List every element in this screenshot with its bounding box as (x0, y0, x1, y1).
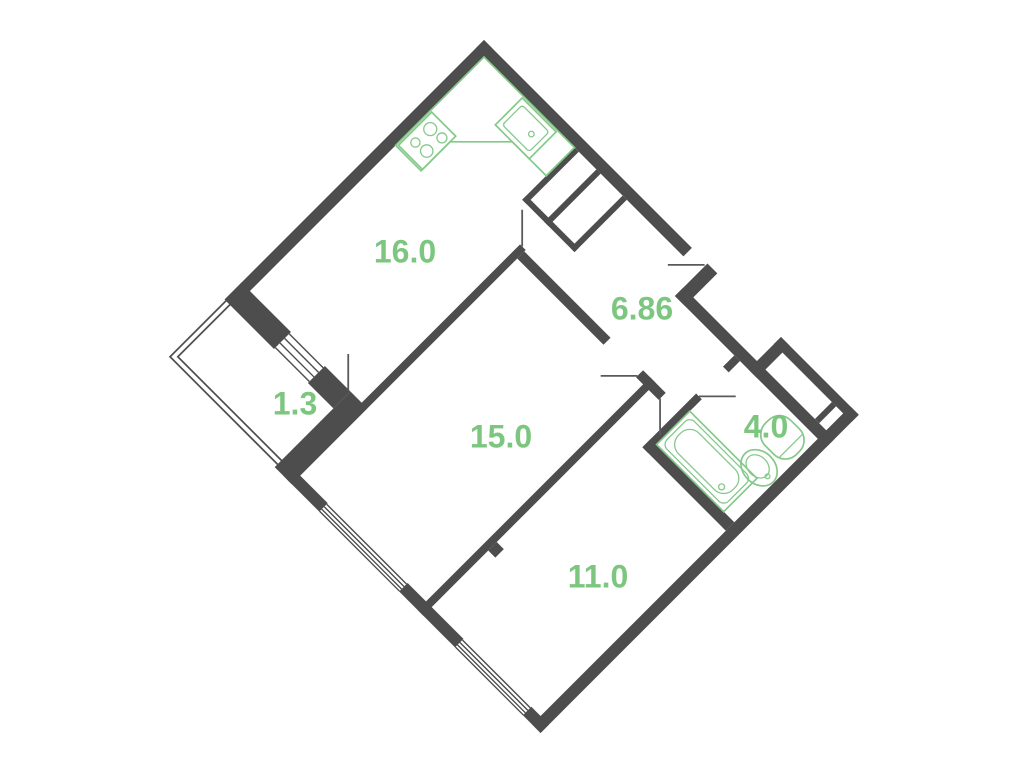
top-wall (476, 40, 692, 256)
bathtub-drain (717, 483, 725, 491)
room-label-kitchen: 16.0 (374, 234, 436, 271)
ventilation-shaft (522, 147, 627, 252)
washbasin-faucet (764, 473, 771, 480)
left-wall (240, 40, 492, 292)
room-label-hallway: 6.86 (611, 291, 673, 328)
bathroom-fixtures (657, 365, 813, 521)
hall-living-wall (517, 251, 610, 344)
bottom-wall-segment (399, 583, 463, 647)
floor-plan-drawing (0, 0, 1024, 768)
bathtub-basin (669, 424, 744, 499)
bedroom-window (455, 640, 530, 715)
sink-faucet (527, 130, 535, 138)
bathroom-door-leaf (699, 378, 736, 415)
floor-plan-stage: 16.0 6.86 1.3 15.0 4.0 11.0 (0, 0, 1024, 768)
room-label-balcony: 1.3 (273, 386, 317, 423)
rotated-plan-group (166, 40, 859, 733)
kitchen-door-leaf (504, 210, 541, 247)
room-label-living-room: 15.0 (470, 419, 532, 456)
stove-burner (418, 142, 436, 160)
room-label-bedroom: 11.0 (568, 559, 629, 596)
kitchen-fixtures (396, 57, 575, 236)
stove-burner (421, 120, 439, 138)
living-room-window (320, 504, 407, 591)
kitchen-balcony-window (275, 334, 323, 382)
living-room-door-leaf (601, 357, 638, 394)
stove-burner (435, 131, 449, 145)
duct-divider (815, 402, 836, 423)
room-label-bathroom: 4.0 (744, 409, 788, 446)
outer-walls (166, 40, 859, 733)
bathtub-rim (662, 417, 751, 506)
stove-burner (409, 136, 422, 149)
